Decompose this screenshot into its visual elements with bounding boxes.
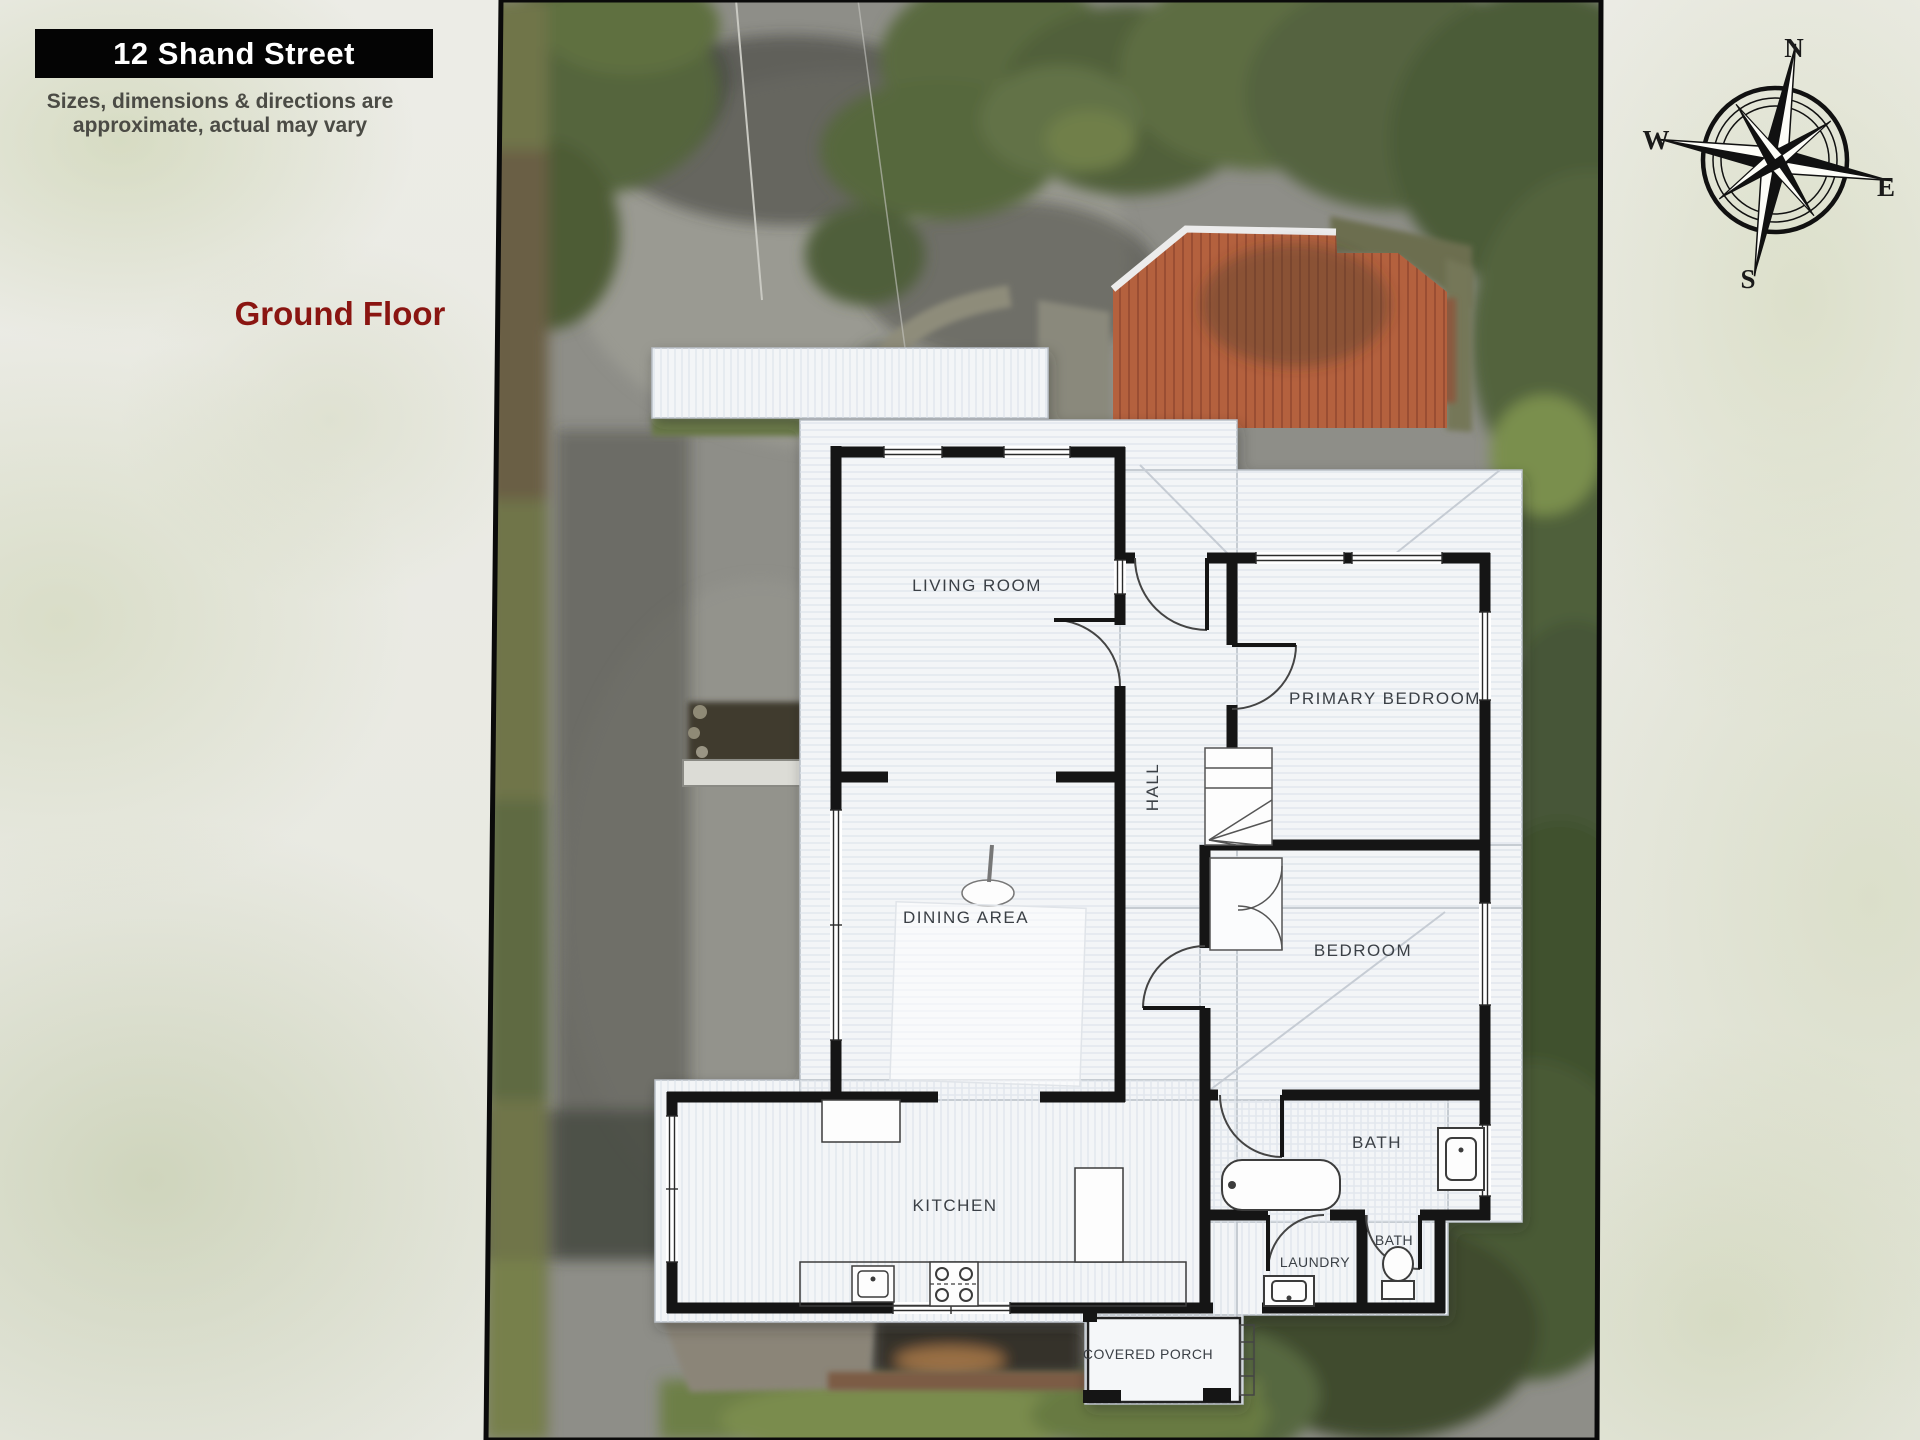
page: 12 Shand Street Sizes, dimensions & dire…	[0, 0, 1920, 1440]
compass-south-label: S	[1740, 264, 1755, 294]
compass-north-label: N	[1784, 33, 1804, 63]
label-bedroom: BEDROOM	[1314, 941, 1412, 960]
label-kitchen: KITCHEN	[912, 1196, 997, 1215]
label-living-room: LIVING ROOM	[912, 576, 1042, 595]
label-primary-bedroom: PRIMARY BEDROOM	[1289, 689, 1481, 708]
label-covered-porch: COVERED PORCH	[1083, 1346, 1213, 1362]
staircase	[1205, 748, 1272, 845]
compass-rose: N E S W	[1638, 23, 1911, 296]
aerial-photo: LIVING ROOM PRIMARY BEDROOM HALL DINING …	[450, 0, 1710, 1440]
label-bath: BATH	[1352, 1133, 1402, 1152]
label-hall: HALL	[1143, 763, 1162, 812]
site-plan-image: LIVING ROOM PRIMARY BEDROOM HALL DINING …	[0, 0, 1920, 1440]
compass-west-label: W	[1643, 125, 1670, 155]
shed-roof	[1113, 229, 1447, 428]
compass-east-label: E	[1877, 172, 1895, 202]
label-dining-area: DINING AREA	[903, 908, 1029, 927]
label-bath-2: BATH	[1375, 1232, 1413, 1248]
label-laundry: LAUNDRY	[1280, 1254, 1350, 1270]
wardrobe	[1210, 858, 1282, 950]
